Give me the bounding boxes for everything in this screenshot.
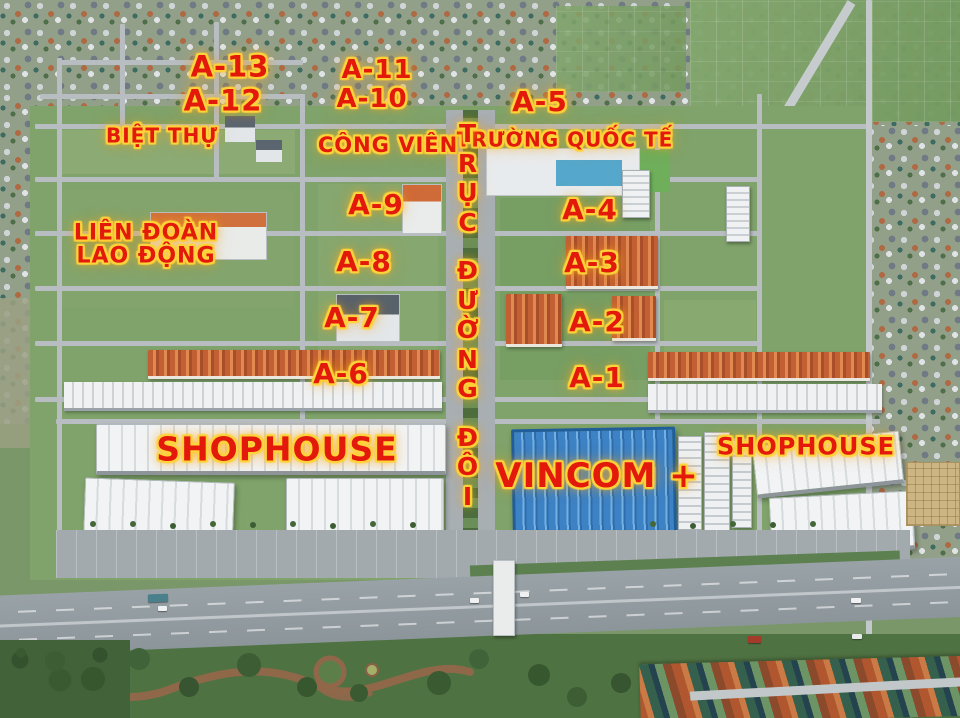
- zone-label-word: ĐÔI: [457, 423, 480, 512]
- zone-label-lien-doan-lao-dong: LIÊN ĐOÀNLAO ĐỘNG: [74, 222, 218, 269]
- zone-label-truong-quoc-te: TRƯỜNG QUỐC TẾ: [457, 129, 674, 150]
- zone-label-word: ĐƯỜNG: [457, 256, 480, 404]
- zone-label-truc-duong-doi: TRỤCĐƯỜNGĐÔI: [457, 119, 480, 511]
- zone-label-a-5: A-5: [512, 87, 568, 117]
- zone-label-a-13: A-13: [191, 52, 270, 83]
- zone-label-a-4: A-4: [562, 195, 618, 225]
- zone-label-a-12: A-12: [184, 86, 263, 117]
- zone-label-a-2: A-2: [569, 307, 625, 337]
- zone-label-a-8: A-8: [336, 247, 392, 277]
- aerial-masterplan-photo: A-13A-12BIỆT THỰA-11A-10CÔNG VIÊNA-5TRƯỜ…: [0, 0, 960, 718]
- zone-label-a-3: A-3: [564, 248, 620, 278]
- zone-label-word: TRỤC: [457, 119, 480, 237]
- zone-label-a-7: A-7: [324, 303, 380, 333]
- zone-label-a-6: A-6: [313, 359, 369, 389]
- zone-label-shophouse-right: SHOPHOUSE: [717, 434, 895, 459]
- zone-label-shophouse-left: SHOPHOUSE: [156, 433, 397, 468]
- zone-label-vincom: VINCOM +: [495, 458, 698, 494]
- zone-label-cong-vien: CÔNG VIÊN: [318, 134, 458, 156]
- label-layer: A-13A-12BIỆT THỰA-11A-10CÔNG VIÊNA-5TRƯỜ…: [0, 0, 960, 718]
- zone-label-a-10: A-10: [336, 86, 407, 114]
- zone-label-a-11: A-11: [341, 57, 412, 85]
- zone-label-a-9: A-9: [348, 190, 404, 220]
- zone-label-biet-thu: BIỆT THỰ: [106, 125, 218, 146]
- zone-label-a-1: A-1: [569, 363, 625, 393]
